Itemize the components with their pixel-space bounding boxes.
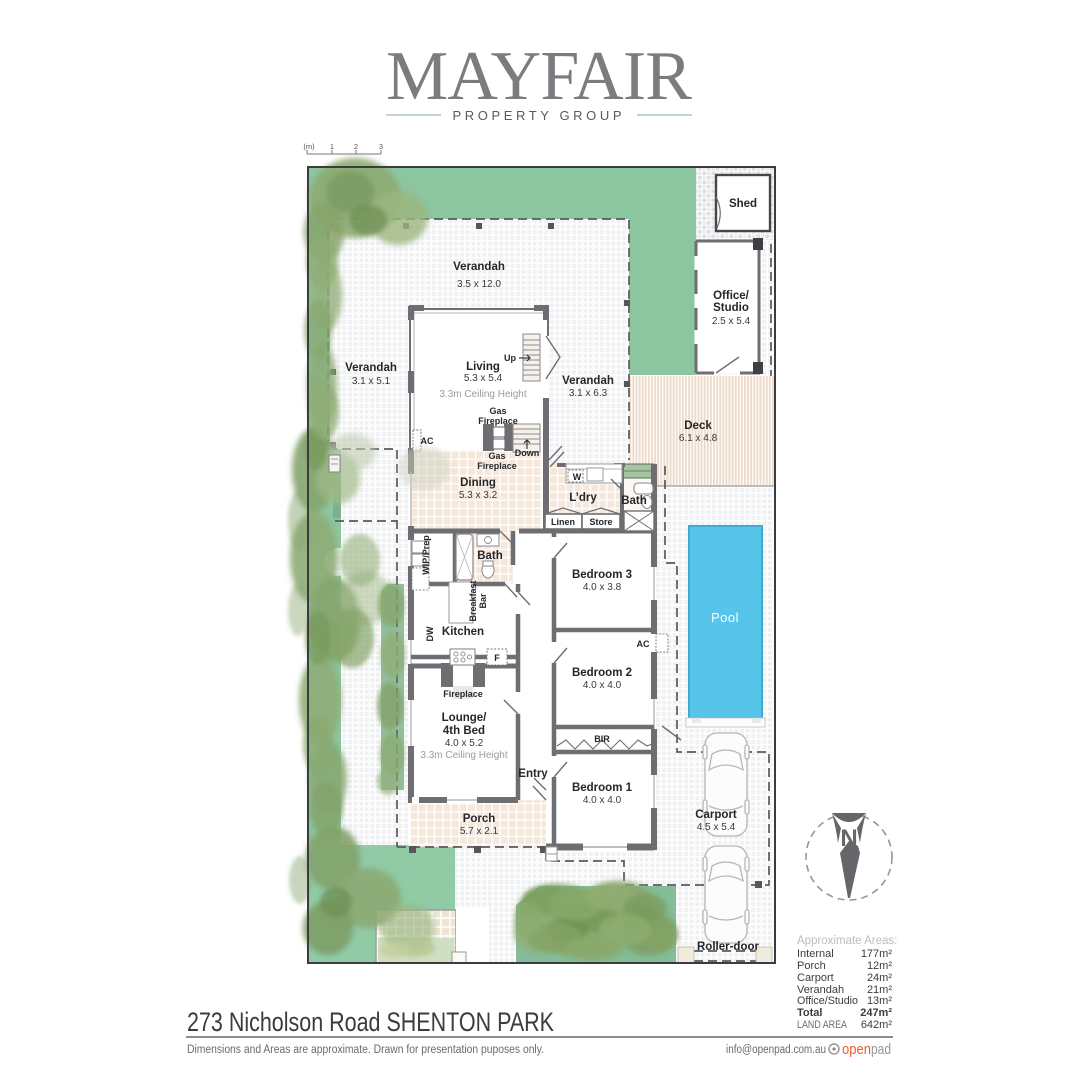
- svg-text:Down: Down: [515, 448, 540, 458]
- svg-text:Lounge/: Lounge/: [442, 712, 488, 724]
- svg-text:Dimensions and Areas are appro: Dimensions and Areas are approximate. Dr…: [187, 1044, 544, 1056]
- svg-text:AC: AC: [421, 436, 434, 446]
- svg-text:3.3m Ceiling Height: 3.3m Ceiling Height: [439, 389, 526, 400]
- svg-text:W: W: [573, 472, 582, 482]
- svg-text:6.1 x 4.8: 6.1 x 4.8: [679, 433, 718, 444]
- svg-text:Office/Studio: Office/Studio: [797, 995, 858, 1007]
- svg-text:MAYFAIR: MAYFAIR: [386, 38, 692, 115]
- svg-text:L’dry: L’dry: [569, 492, 597, 504]
- svg-text:Verandah: Verandah: [345, 362, 397, 374]
- svg-text:open: open: [842, 1041, 871, 1058]
- svg-text:3.1 x 6.3: 3.1 x 6.3: [569, 388, 608, 399]
- svg-text:177m²: 177m²: [861, 948, 893, 960]
- svg-text:Shed: Shed: [729, 198, 757, 210]
- svg-text:Bedroom 2: Bedroom 2: [572, 667, 632, 679]
- svg-text:5.3 x 5.4: 5.3 x 5.4: [464, 373, 503, 384]
- svg-text:4.0 x 3.8: 4.0 x 3.8: [583, 582, 622, 593]
- svg-text:WIP/Prep: WIP/Prep: [421, 535, 431, 575]
- svg-text:13m²: 13m²: [867, 995, 892, 1007]
- svg-text:247m²: 247m²: [860, 1007, 892, 1019]
- svg-text:Verandah: Verandah: [453, 261, 505, 273]
- svg-text:3.5 x 12.0: 3.5 x 12.0: [457, 279, 501, 290]
- svg-text:Fireplace: Fireplace: [478, 416, 518, 426]
- svg-text:5.3 x 3.2: 5.3 x 3.2: [459, 490, 498, 501]
- svg-text:4.0 x 4.0: 4.0 x 4.0: [583, 680, 622, 691]
- svg-text:pad: pad: [871, 1041, 891, 1058]
- svg-text:4.0 x 5.2: 4.0 x 5.2: [445, 738, 484, 749]
- svg-text:1: 1: [330, 142, 334, 151]
- svg-text:Carport: Carport: [695, 809, 737, 821]
- svg-text:Living: Living: [466, 361, 500, 373]
- svg-text:LAND AREA: LAND AREA: [797, 1019, 848, 1031]
- svg-text:3: 3: [379, 142, 383, 151]
- svg-text:4th Bed: 4th Bed: [443, 725, 485, 737]
- svg-text:Bath: Bath: [621, 495, 647, 507]
- svg-text:Breakfast: Breakfast: [468, 580, 478, 621]
- svg-text:Office/: Office/: [713, 290, 750, 302]
- svg-text:Bedroom 3: Bedroom 3: [572, 569, 632, 581]
- svg-text:4.0 x 4.0: 4.0 x 4.0: [583, 795, 622, 806]
- svg-text:Gas: Gas: [489, 406, 506, 416]
- svg-text:info@openpad.com.au: info@openpad.com.au: [726, 1044, 826, 1056]
- svg-text:F: F: [494, 653, 500, 663]
- svg-text:Carport: Carport: [797, 972, 834, 984]
- svg-text:Approximate Areas:: Approximate Areas:: [797, 935, 897, 947]
- svg-text:Porch: Porch: [463, 813, 496, 825]
- svg-text:Internal: Internal: [797, 948, 834, 960]
- svg-text:12m²: 12m²: [867, 960, 892, 972]
- svg-text:Bar: Bar: [478, 593, 488, 609]
- svg-text:4.5 x 5.4: 4.5 x 5.4: [697, 822, 736, 833]
- svg-text:PROPERTY GROUP: PROPERTY GROUP: [453, 108, 626, 123]
- svg-text:Fireplace: Fireplace: [443, 689, 483, 699]
- svg-text:2: 2: [354, 142, 358, 151]
- svg-text:Deck: Deck: [684, 420, 712, 432]
- svg-text:Roller-door: Roller-door: [697, 941, 759, 953]
- svg-text:Store: Store: [589, 517, 612, 527]
- svg-text:Dining: Dining: [460, 477, 496, 489]
- svg-text:Bedroom 1: Bedroom 1: [572, 782, 633, 794]
- svg-text:Total: Total: [797, 1007, 822, 1019]
- svg-text:BIR: BIR: [594, 734, 610, 744]
- svg-text:Linen: Linen: [551, 517, 575, 527]
- svg-text:Entry: Entry: [518, 768, 548, 780]
- svg-text:Verandah: Verandah: [562, 375, 614, 387]
- svg-text:Up: Up: [504, 353, 516, 363]
- svg-text:DW: DW: [425, 626, 435, 641]
- svg-text:Porch: Porch: [797, 960, 826, 972]
- svg-text:AC: AC: [637, 639, 650, 649]
- svg-text:Bath: Bath: [477, 550, 503, 562]
- svg-text:642m²: 642m²: [861, 1019, 893, 1031]
- svg-text:3.1 x 5.1: 3.1 x 5.1: [352, 376, 391, 387]
- svg-text:3.3m Ceiling Height: 3.3m Ceiling Height: [420, 750, 507, 761]
- svg-text:Studio: Studio: [713, 302, 749, 314]
- svg-text:(m): (m): [303, 142, 315, 151]
- svg-text:Kitchen: Kitchen: [442, 626, 484, 638]
- svg-text:N: N: [840, 825, 857, 852]
- svg-text:2.5 x 5.4: 2.5 x 5.4: [712, 316, 751, 327]
- svg-text:Fireplace: Fireplace: [477, 461, 517, 471]
- svg-text:5.7 x 2.1: 5.7 x 2.1: [460, 826, 499, 837]
- svg-text:Gas: Gas: [488, 451, 505, 461]
- svg-text:273 Nicholson Road SHENTON PAR: 273 Nicholson Road SHENTON PARK: [187, 1007, 554, 1037]
- svg-text:24m²: 24m²: [867, 972, 892, 984]
- svg-text:Pool: Pool: [711, 610, 739, 625]
